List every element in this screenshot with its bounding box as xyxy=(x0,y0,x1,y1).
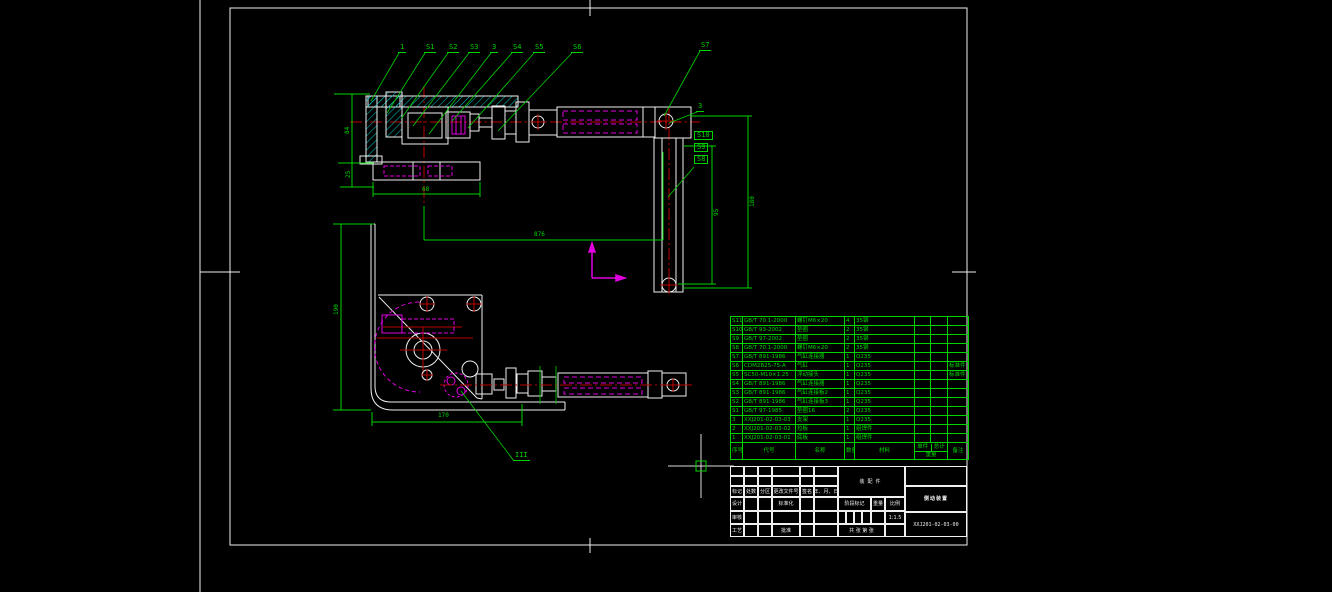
bom-header-total-weight: 总计 xyxy=(932,444,948,451)
title-block-empty-cell xyxy=(758,524,772,537)
title-block-middle: 装配件 阶段标记 重量 比例 1:1.5 共 张 第 张 xyxy=(838,466,905,537)
dimension-label: 876 xyxy=(534,232,545,238)
bom-cell: 1 xyxy=(845,380,855,389)
dimension-label: 84 xyxy=(345,127,351,134)
bom-row: S5SC50-M10×1.25浮动接头1Q235标准件 xyxy=(731,371,969,380)
bom-cell: Q235 xyxy=(855,353,915,362)
bom-cell: 1 xyxy=(845,389,855,398)
bom-cell xyxy=(931,380,948,389)
bom-cell: 气缸 xyxy=(796,362,845,371)
bom-cell: Q235 xyxy=(855,371,915,380)
bom-header-weight: 重量 xyxy=(915,452,947,459)
callout-label: S7 xyxy=(699,42,711,51)
bom-cell: 2 xyxy=(845,344,855,353)
bom-cell: S2 xyxy=(731,398,743,407)
bom-row: S6CDM2B25-75-A气缸1Q235标准件 xyxy=(731,362,969,371)
bom-cell xyxy=(915,389,931,398)
bom-cell xyxy=(931,335,948,344)
title-block-empty-cell xyxy=(744,476,758,486)
bom-cell: 垫圈 xyxy=(796,335,845,344)
bolt-symbol xyxy=(419,296,482,312)
bom-row: S3GB/T 891-1986气缸连接板21Q235 xyxy=(731,389,969,398)
title-block-empty-cell xyxy=(800,497,814,511)
bom-cell xyxy=(931,416,948,425)
bom-header-qty: 数量 xyxy=(845,443,855,460)
callout-label: 3 xyxy=(490,44,498,53)
bom-cell: 35钢 xyxy=(855,326,915,335)
bom-row: 2XXJ201-02-03-02拉板1组焊件 xyxy=(731,425,969,434)
bom-row: 3XXJ201-02-03-03支架1Q235 xyxy=(731,416,969,425)
bom-cell: S3 xyxy=(731,389,743,398)
title-block-empty-cell xyxy=(758,497,772,511)
bom-cell xyxy=(915,425,931,434)
bom-cell xyxy=(948,317,969,326)
bom-cell: S5 xyxy=(731,371,743,380)
title-block-label: 工艺 xyxy=(730,524,744,537)
dimension-label: 25 xyxy=(346,171,352,178)
base-plate xyxy=(373,162,480,180)
bom-cell xyxy=(931,434,948,443)
title-block-empty-cell xyxy=(800,476,814,486)
bom-cell: GB/T 93-2002 xyxy=(743,326,796,335)
bom-cell xyxy=(915,398,931,407)
bom-cell xyxy=(948,353,969,362)
bom-cell xyxy=(948,398,969,407)
bom-cell xyxy=(931,326,948,335)
bom-cell xyxy=(915,344,931,353)
stage-mark-cell xyxy=(846,511,854,524)
bom-cell: 1 xyxy=(731,434,743,443)
bom-cell xyxy=(915,380,931,389)
bom-cell: S6 xyxy=(731,362,743,371)
bom-cell: GB/T 97-2002 xyxy=(743,335,796,344)
title-block-empty-cell xyxy=(772,476,800,486)
bom-cell: 螺钉M6×20 xyxy=(796,317,845,326)
bom-row: S9GB/T 97-2002垫圈235钢 xyxy=(731,335,969,344)
callout-label: 3 xyxy=(696,103,704,112)
bom-row: S7GB/T 891-1986气缸连接器1Q235 xyxy=(731,353,969,362)
bom-header-material: 材料 xyxy=(855,443,915,460)
bom-cell: S9 xyxy=(731,335,743,344)
title-block-empty-cell xyxy=(744,511,758,524)
title-block-empty-cell xyxy=(730,476,744,486)
callout-label: S10 xyxy=(694,131,713,140)
dimension-label: 190 xyxy=(334,304,340,315)
company-cell xyxy=(905,466,967,486)
bom-cell: 1 xyxy=(845,425,855,434)
bom-cell xyxy=(948,416,969,425)
bom-cell: Q235 xyxy=(855,416,915,425)
callout-label: S1 xyxy=(424,44,436,53)
bom-cell xyxy=(948,389,969,398)
title-block-empty-cell xyxy=(772,511,800,524)
bom-cell: 气缸连接器 xyxy=(796,380,845,389)
bom-cell xyxy=(931,317,948,326)
title-block-empty-cell xyxy=(744,466,758,476)
bom-cell xyxy=(915,317,931,326)
bom-cell: 35钢 xyxy=(855,317,915,326)
bottom-view-drawing xyxy=(333,224,695,426)
bom-cell: 组焊件 xyxy=(855,434,915,443)
bom-cell: Q235 xyxy=(855,389,915,398)
bom-cell: 35钢 xyxy=(855,335,915,344)
title-block-label: 年、月、日 xyxy=(814,486,838,497)
title-block-label: 批准 xyxy=(772,524,800,537)
bom-cell xyxy=(931,353,948,362)
bom-cell: S1 xyxy=(731,407,743,416)
pivot-bore xyxy=(377,327,473,374)
title-block-empty-cell xyxy=(772,466,800,476)
bom-cell: 气缸连接板2 xyxy=(796,389,845,398)
title-block-label: 处数 xyxy=(744,486,758,497)
bom-cell: Q235 xyxy=(855,362,915,371)
bom-cell: CDM2B25-75-A xyxy=(743,362,796,371)
bom-cell: 浮动接头 xyxy=(796,371,845,380)
hatched-rail-and-bracket xyxy=(360,92,518,164)
bom-cell: 1 xyxy=(845,353,855,362)
title-block-label: 更改文件号 xyxy=(772,486,800,497)
bom-cell: GB/T 891-1986 xyxy=(743,380,796,389)
bom-row: S8GB/T 70.1-2000螺钉M6×20235钢 xyxy=(731,344,969,353)
bom-cell xyxy=(931,398,948,407)
bom-table: S11GB/T 70.1-2000螺钉M6×20435钢S10GB/T 93-2… xyxy=(730,316,969,460)
bolt-symbol xyxy=(657,112,675,130)
bom-cell: GB/T 70.1-2000 xyxy=(743,317,796,326)
bom-cell: 4 xyxy=(845,317,855,326)
title-block-empty-cell xyxy=(800,466,814,476)
bom-cell xyxy=(948,335,969,344)
callout-label: S2 xyxy=(447,44,459,53)
bom-cell xyxy=(915,335,931,344)
sheet-count-note: 共 张 第 张 xyxy=(838,524,885,537)
title-block-label: 签名 xyxy=(800,486,814,497)
dimension-label: 95 xyxy=(714,209,720,216)
stage-mark-cell xyxy=(862,511,871,524)
bom-cell: XXJ201-02-03-01 xyxy=(743,434,796,443)
doc-type-label: 装配件 xyxy=(838,466,905,497)
bom-cell: SC50-M10×1.25 xyxy=(743,371,796,380)
bom-cell xyxy=(948,380,969,389)
bom-cell: S10 xyxy=(731,326,743,335)
drawing-number: XXJ201-02-03-00 xyxy=(905,512,967,537)
bom-cell: GB/T 891-1986 xyxy=(743,353,796,362)
callout-label: S4 xyxy=(511,44,523,53)
title-block-empty-cell xyxy=(800,524,814,537)
bom-cell xyxy=(948,326,969,335)
bolt-symbol xyxy=(660,276,678,294)
dimension-lines xyxy=(333,224,522,426)
drawing-title: 侧动装置 xyxy=(905,486,967,512)
bom-header-name: 名称 xyxy=(796,443,845,460)
weight-label: 重量 xyxy=(871,497,885,511)
title-block-empty-cell xyxy=(758,476,772,486)
bom-cell: 垫圈 xyxy=(796,326,845,335)
bom-cell: Q235 xyxy=(855,407,915,416)
bom-cell: 1 xyxy=(845,398,855,407)
bom-row: S4GB/T 891-1986气缸连接器1Q235 xyxy=(731,380,969,389)
stage-mark-label: 阶段标记 xyxy=(838,497,871,511)
bom-cell: 2 xyxy=(845,407,855,416)
dimension-label: 180 xyxy=(750,196,756,207)
bom-header-code: 代号 xyxy=(743,443,796,460)
title-block-empty-cell xyxy=(758,511,772,524)
title-block-revision-grid: 标记处数分区更改文件号签名年、月、日设计标准化审核工艺批准 xyxy=(730,466,838,537)
empty-cell xyxy=(885,524,905,537)
bom-cell: 1 xyxy=(845,371,855,380)
bom-cell: 气缸连接器 xyxy=(796,353,845,362)
bom-row: S10GB/T 93-2002垫圈235钢 xyxy=(731,326,969,335)
title-block-empty-cell xyxy=(744,497,758,511)
title-block-label: 设计 xyxy=(730,497,744,511)
title-block-label: 分区 xyxy=(758,486,772,497)
bom-row: S11GB/T 70.1-2000螺钉M6×20435钢 xyxy=(731,317,969,326)
dimension-label: 68 xyxy=(422,187,429,193)
ucs-axes-icon xyxy=(589,243,625,281)
bom-cell xyxy=(915,326,931,335)
cylinder-body xyxy=(476,368,686,398)
callout-label: S3 xyxy=(468,44,480,53)
title-block-empty-cell xyxy=(800,511,814,524)
stage-mark-cell xyxy=(854,511,862,524)
bom-cell: 1 xyxy=(845,416,855,425)
bom-cell: 2 xyxy=(731,425,743,434)
cad-drawing-canvas[interactable]: 1S1S2S33S4S5S6S73S10S9S8III8425688769518… xyxy=(0,0,1332,592)
bom-cell xyxy=(931,389,948,398)
stage-mark-cell xyxy=(838,511,846,524)
bom-cell: 组焊件 xyxy=(855,425,915,434)
callout-label: III xyxy=(513,452,530,461)
title-block-empty-cell xyxy=(814,476,838,486)
bom-header-weight-group: 单件 总计 重量 xyxy=(915,443,948,460)
callout-label: S6 xyxy=(571,44,583,53)
title-block-empty-cell xyxy=(814,497,838,511)
bom-cell xyxy=(931,344,948,353)
bom-cell: 2 xyxy=(845,326,855,335)
callout-label: S9 xyxy=(694,143,708,152)
bom-cell xyxy=(931,425,948,434)
title-block-right: 侧动装置 XXJ201-02-03-00 xyxy=(905,466,967,537)
bom-cell: GB/T 891-1986 xyxy=(743,389,796,398)
bom-cell: S7 xyxy=(731,353,743,362)
title-block-empty-cell xyxy=(744,524,758,537)
callout-label: S5 xyxy=(533,44,545,53)
bom-cell: S4 xyxy=(731,380,743,389)
bom-cell xyxy=(931,362,948,371)
callout-label: 1 xyxy=(398,44,406,53)
bom-cell: 垫圈16 xyxy=(796,407,845,416)
callout-label: S8 xyxy=(694,155,708,164)
bom-header-no: 序号 xyxy=(731,443,743,460)
bolt-symbol xyxy=(530,114,546,130)
bom-cell: Q235 xyxy=(855,398,915,407)
bom-header-row: 序号 代号 名称 数量 材料 单件 总计 重量 备注 xyxy=(731,443,969,460)
bom-cell: XXJ201-02-03-03 xyxy=(743,416,796,425)
scale-label: 比例 xyxy=(885,497,905,511)
bom-cell xyxy=(948,407,969,416)
bom-cell: 35钢 xyxy=(855,344,915,353)
bom-cell: 1 xyxy=(845,434,855,443)
bom-cell xyxy=(915,353,931,362)
scale-value: 1:1.5 xyxy=(885,511,905,524)
title-block-label: 审核 xyxy=(730,511,744,524)
bom-cell: 3 xyxy=(731,416,743,425)
bom-cell xyxy=(915,434,931,443)
bom-cell xyxy=(931,371,948,380)
bom-row: S1GB/T 97-1985垫圈162Q235 xyxy=(731,407,969,416)
bom-cell: 标准件 xyxy=(948,362,969,371)
title-block: 标记处数分区更改文件号签名年、月、日设计标准化审核工艺批准 装配件 阶段标记 重… xyxy=(730,466,967,537)
bom-cell: 2 xyxy=(845,335,855,344)
bom-cell: XXJ201-02-03-02 xyxy=(743,425,796,434)
bom-cell: 1 xyxy=(845,362,855,371)
bom-cell xyxy=(931,407,948,416)
bom-cell xyxy=(948,344,969,353)
bom-cell: S8 xyxy=(731,344,743,353)
title-block-empty-cell xyxy=(730,466,744,476)
bom-cell: 底板 xyxy=(796,434,845,443)
weight-value-cell xyxy=(871,511,885,524)
dimension-label: 170 xyxy=(438,413,449,419)
title-block-empty-cell xyxy=(814,524,838,537)
bom-cell xyxy=(915,407,931,416)
bom-cell: 拉板 xyxy=(796,425,845,434)
drawing-geometry-layer xyxy=(0,0,1332,592)
title-block-label: 标准化 xyxy=(772,497,800,511)
bom-cell xyxy=(948,434,969,443)
bom-cell: S11 xyxy=(731,317,743,326)
title-block-label: 标记 xyxy=(730,486,744,497)
bom-cell: 标准件 xyxy=(948,371,969,380)
title-block-empty-cell xyxy=(758,466,772,476)
title-block-empty-cell xyxy=(814,466,838,476)
bom-cell: 支架 xyxy=(796,416,845,425)
bom-cell xyxy=(915,362,931,371)
bom-cell: Q235 xyxy=(855,380,915,389)
crosshair-cursor xyxy=(668,434,734,498)
bom-header-note: 备注 xyxy=(948,443,969,460)
bom-cell: 气缸连接板3 xyxy=(796,398,845,407)
title-block-empty-cell xyxy=(814,511,838,524)
top-view-drawing xyxy=(334,86,752,294)
bom-cell: 螺钉M6×20 xyxy=(796,344,845,353)
bom-cell: GB/T 891-1986 xyxy=(743,398,796,407)
bom-row: S2GB/T 891-1986气缸连接板31Q235 xyxy=(731,398,969,407)
bom-cell xyxy=(915,371,931,380)
bom-cell: GB/T 97-1985 xyxy=(743,407,796,416)
bom-cell xyxy=(948,425,969,434)
bom-cell: GB/T 70.1-2000 xyxy=(743,344,796,353)
bom-header-unit-weight: 单件 xyxy=(915,444,932,451)
bom-cell xyxy=(915,416,931,425)
bom-row: 1XXJ201-02-03-01底板1组焊件 xyxy=(731,434,969,443)
